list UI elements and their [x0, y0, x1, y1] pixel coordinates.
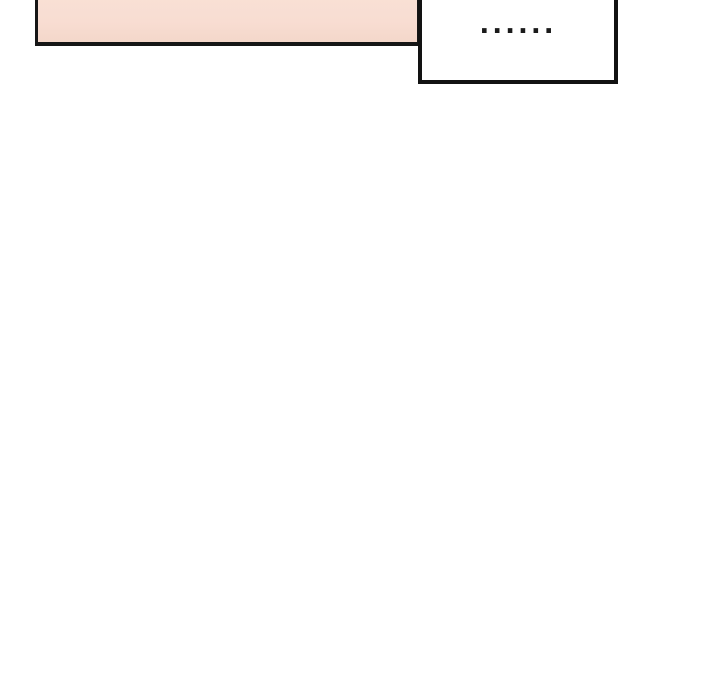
comic-panel-pink — [35, 0, 420, 46]
speech-bubble-text: ...... — [479, 12, 556, 38]
comic-page: ...... — [0, 0, 720, 700]
speech-bubble: ...... — [418, 0, 618, 84]
